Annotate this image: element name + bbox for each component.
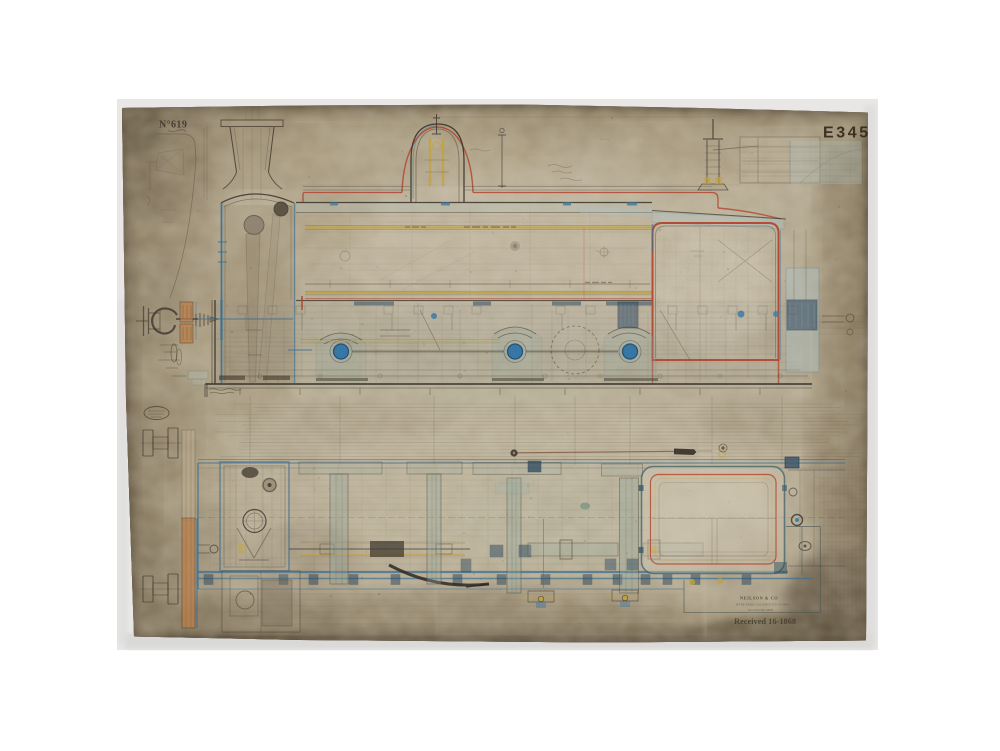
- svg-text:E345: E345: [823, 125, 871, 142]
- svg-text:GLASGOW 1868: GLASGOW 1868: [748, 608, 773, 612]
- svg-text:Received 16-1868: Received 16-1868: [734, 617, 796, 626]
- svg-text:HYDE PARK LOCOMOTIVE WORKS: HYDE PARK LOCOMOTIVE WORKS: [736, 603, 790, 607]
- svg-text:NEILSON & CO: NEILSON & CO: [740, 596, 778, 601]
- svg-text:N°619: N°619: [159, 120, 187, 131]
